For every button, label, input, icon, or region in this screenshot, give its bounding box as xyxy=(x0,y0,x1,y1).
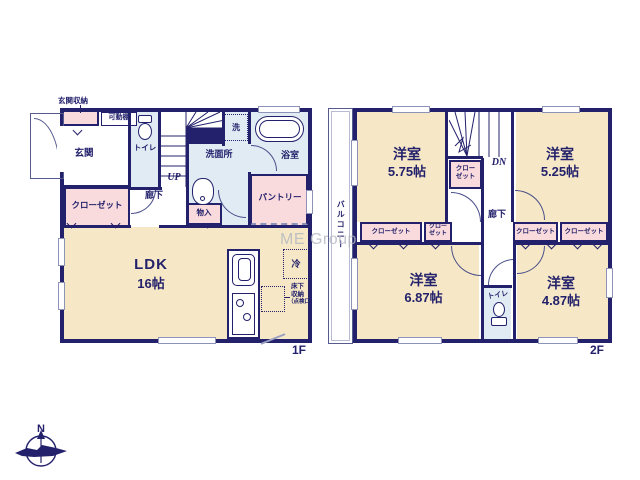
entrance-storage-label: 玄関収納 xyxy=(58,97,88,106)
entrance-door-gap xyxy=(57,126,64,172)
entrance-storage-shelf xyxy=(64,112,99,126)
wall xyxy=(248,172,251,227)
underfloor-label-1: 床下 xyxy=(291,283,315,290)
closet-1f-label: クローゼット xyxy=(66,201,128,211)
window xyxy=(542,106,580,113)
window xyxy=(392,106,430,113)
wall xyxy=(513,244,516,339)
leader-line xyxy=(80,105,81,113)
wall xyxy=(481,158,484,339)
window xyxy=(606,268,613,298)
floor1-label: 1F xyxy=(292,344,306,358)
wall xyxy=(64,185,128,188)
window xyxy=(538,337,578,344)
wall xyxy=(186,128,225,144)
room2-name: 洋室 xyxy=(528,146,592,162)
wall xyxy=(484,285,512,288)
wall xyxy=(445,112,448,222)
compass-north-label: N xyxy=(37,423,45,435)
room3-name: 洋室 xyxy=(391,272,456,288)
watermark: ME Group xyxy=(280,231,357,249)
closet-2f-label-line2: ゼット xyxy=(449,173,482,180)
balcony-label: バルコニー xyxy=(336,190,345,260)
closet-2f-label-line1: クロー xyxy=(449,165,482,172)
wall xyxy=(447,156,483,159)
closet-2f-label: クローゼット xyxy=(360,228,422,235)
window xyxy=(351,140,358,186)
wall xyxy=(159,225,308,228)
room3-size: 6.87帖 xyxy=(391,291,456,306)
window xyxy=(398,337,442,344)
toilet-tank-icon xyxy=(491,317,507,326)
toilet-bowl-icon xyxy=(138,123,152,140)
room4-size: 4.87帖 xyxy=(529,294,593,309)
washer-label: 洗 xyxy=(224,123,248,132)
bathroom-label: 浴室 xyxy=(270,150,310,160)
basin-drain-icon xyxy=(200,196,205,201)
room2-size: 5.25帖 xyxy=(528,165,592,180)
leader-line xyxy=(285,297,290,298)
underfloor-label-2: 収納 xyxy=(291,291,315,298)
room4-name: 洋室 xyxy=(529,275,593,291)
underfloor-storage-box xyxy=(261,286,285,312)
burner-icon xyxy=(236,299,244,307)
window xyxy=(58,238,65,266)
room1-size: 5.75帖 xyxy=(375,165,439,180)
washroom-label: 洗面所 xyxy=(190,149,248,159)
bathtub-inner-icon xyxy=(259,120,300,138)
toilet-tank-icon xyxy=(138,115,152,123)
toilet-1f-label: トイレ xyxy=(128,144,162,153)
window xyxy=(158,337,216,344)
floor2-label: 2F xyxy=(590,344,604,358)
closet-2f-label: クローゼット xyxy=(513,228,558,235)
hallway-2f-label: 廊下 xyxy=(481,209,513,219)
burner-icon xyxy=(243,313,251,321)
stairs-up-label: UP xyxy=(160,172,188,184)
window xyxy=(58,282,65,310)
window xyxy=(258,106,300,113)
stairs-down-label: DN xyxy=(486,157,512,169)
closet-2f-label-line1: クロー xyxy=(424,224,452,231)
fridge-label: 冷 xyxy=(283,259,309,269)
compass-icon: N xyxy=(12,418,70,476)
ldk-name-label: LDK xyxy=(111,256,191,273)
stairs-down-icon xyxy=(449,112,511,157)
entrance-label: 玄関 xyxy=(64,149,104,160)
room1-name: 洋室 xyxy=(375,146,439,162)
pantry-label: パントリー xyxy=(252,193,308,203)
movable-shelf-label: 可動棚 xyxy=(101,114,137,122)
sink-basin-icon xyxy=(238,258,251,281)
wall xyxy=(248,112,251,144)
storage-label-1f: 物入 xyxy=(186,209,222,218)
underfloor-label-3: （点検口） xyxy=(288,299,316,305)
ldk-size-label: 16帖 xyxy=(111,277,191,292)
hallway-1f-label: 廊下 xyxy=(134,190,174,200)
floor-plan-canvas: 可動棚 玄関収納 クローゼット パントリー 物入 UP 玄関 トイレ xyxy=(0,0,640,480)
toilet-bowl-icon xyxy=(493,302,505,317)
window xyxy=(351,258,358,310)
closet-2f-label: クローゼット xyxy=(560,228,608,235)
closet-2f-label-line2: ゼット xyxy=(424,231,452,238)
